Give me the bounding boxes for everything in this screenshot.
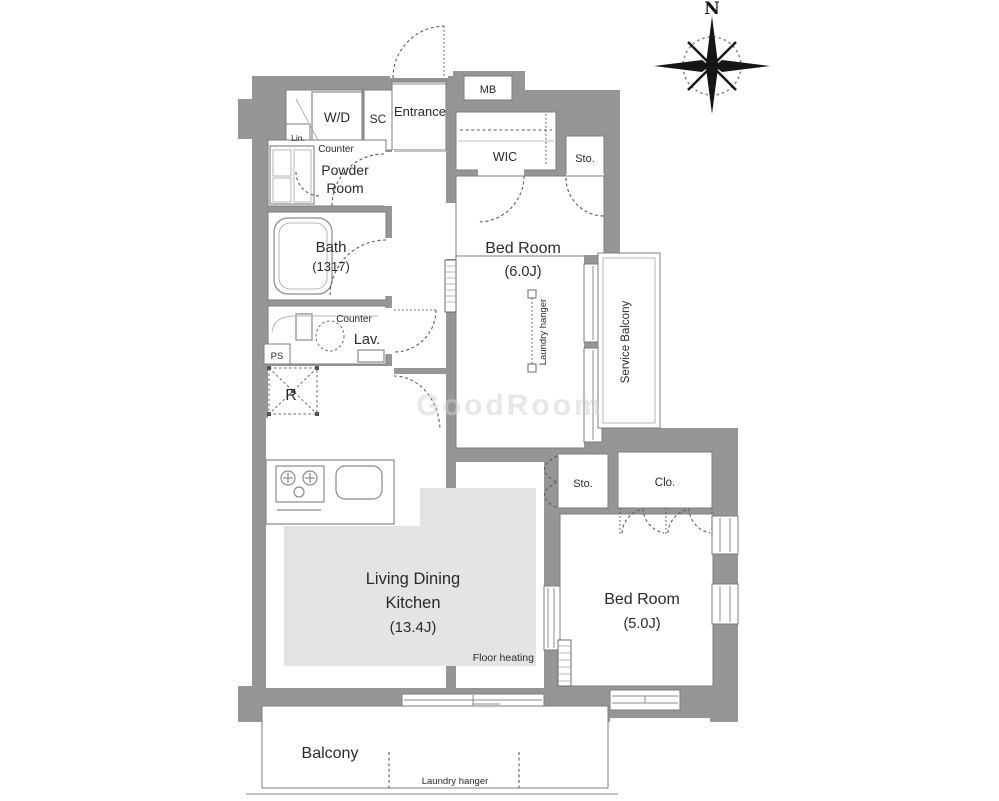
window-bedroom2-a [712, 516, 738, 554]
label-counter-lav: Counter [336, 314, 372, 325]
label-closet: Clo. [655, 477, 675, 489]
label-powder-2: Room [326, 180, 363, 196]
label-ldk-size: (13.4J) [390, 619, 437, 636]
watermark: GoodRoom [416, 389, 603, 422]
label-bedroom2-size: (5.0J) [623, 616, 660, 632]
label-powder-1: Powder [321, 162, 369, 178]
label-laundry-hanger-room: Laundry hanger [538, 299, 549, 366]
label-bedroom1: Bed Room [485, 240, 561, 257]
window-bedroom2-b [712, 584, 738, 624]
label-mb: MB [480, 84, 497, 96]
entry-opening [390, 64, 448, 78]
label-pipe-space: PS [271, 351, 284, 362]
label-storage-mid: Sto. [573, 478, 593, 490]
sliding-panel-bedroom2 [558, 640, 571, 686]
floor-plan-canvas: GoodRoom N MB Entrance SC W/D Lin. Count… [0, 0, 999, 801]
label-wic: WIC [493, 150, 517, 164]
label-washer-dryer: W/D [324, 110, 350, 125]
north-label: N [704, 0, 720, 19]
label-counter-wd: Counter [318, 144, 354, 155]
sliding-panel-bedroom1 [445, 260, 456, 312]
label-balcony: Balcony [302, 745, 359, 762]
label-bath: Bath [316, 239, 347, 256]
floor-plan-page: GoodRoom N MB Entrance SC W/D Lin. Count… [0, 0, 999, 801]
label-lavatory: Lav. [354, 332, 380, 348]
label-service-balcony: Service Balcony [620, 301, 632, 384]
label-bedroom2: Bed Room [604, 591, 680, 608]
label-floor-heating: Floor heating [473, 652, 534, 664]
compass-rose: N [654, 0, 770, 114]
label-storage-top: Sto. [575, 153, 595, 165]
label-entrance: Entrance [394, 104, 446, 119]
label-laundry-hanger-balcony: Laundry hanger [422, 776, 489, 787]
label-bedroom1-size: (6.0J) [504, 264, 541, 280]
label-ldk-1: Living Dining [366, 570, 460, 588]
label-refrigerator: R [285, 387, 297, 404]
label-ldk-2: Kitchen [385, 594, 440, 612]
label-shoe-closet: SC [370, 112, 387, 126]
hallway [392, 150, 446, 368]
label-bath-size: (1317) [312, 259, 350, 274]
label-linen: Lin. [291, 133, 305, 143]
